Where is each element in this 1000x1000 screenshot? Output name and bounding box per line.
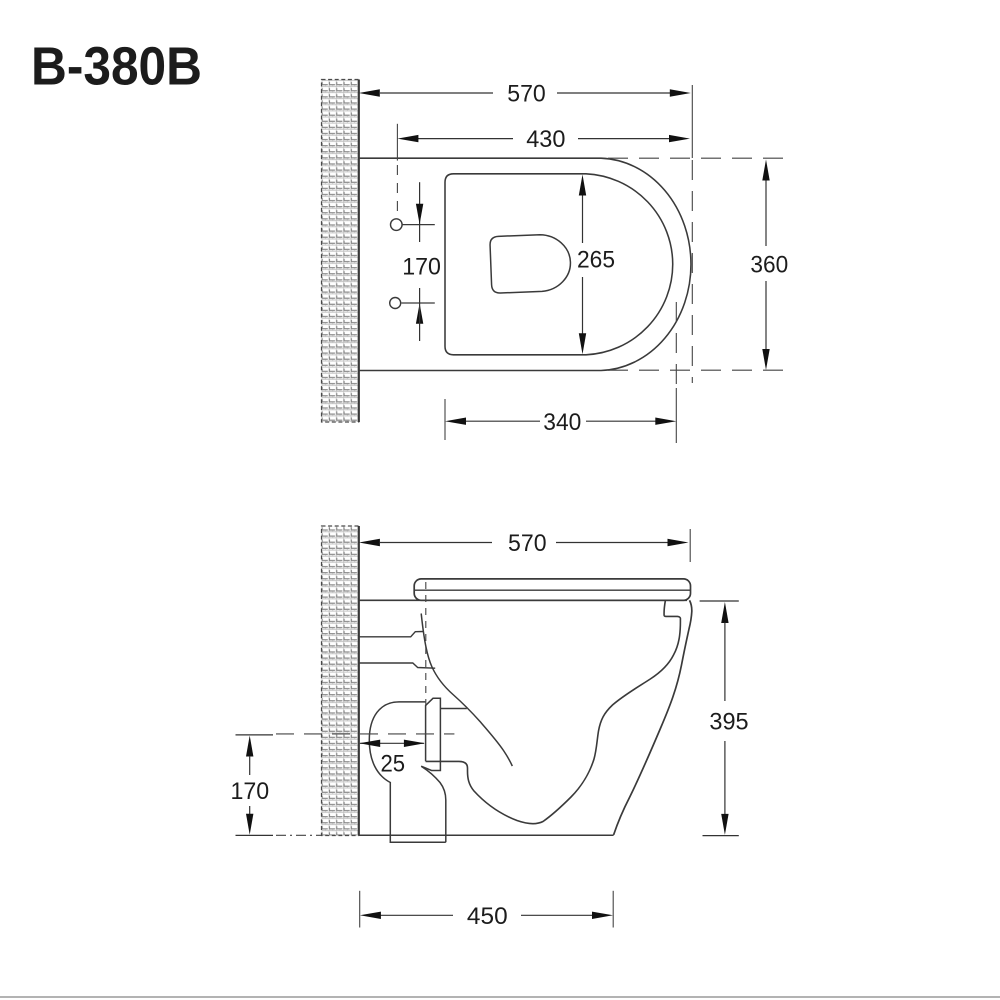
svg-text:265: 265: [577, 246, 615, 273]
svg-text:170: 170: [402, 253, 441, 280]
svg-text:395: 395: [709, 709, 748, 736]
svg-text:570: 570: [507, 81, 546, 108]
svg-text:25: 25: [381, 751, 406, 778]
svg-text:340: 340: [543, 409, 581, 436]
svg-text:360: 360: [750, 252, 788, 279]
svg-text:B-380B: B-380B: [31, 37, 202, 97]
svg-text:430: 430: [526, 126, 565, 153]
svg-text:450: 450: [467, 903, 508, 930]
svg-text:570: 570: [508, 530, 547, 557]
svg-text:170: 170: [230, 778, 269, 805]
